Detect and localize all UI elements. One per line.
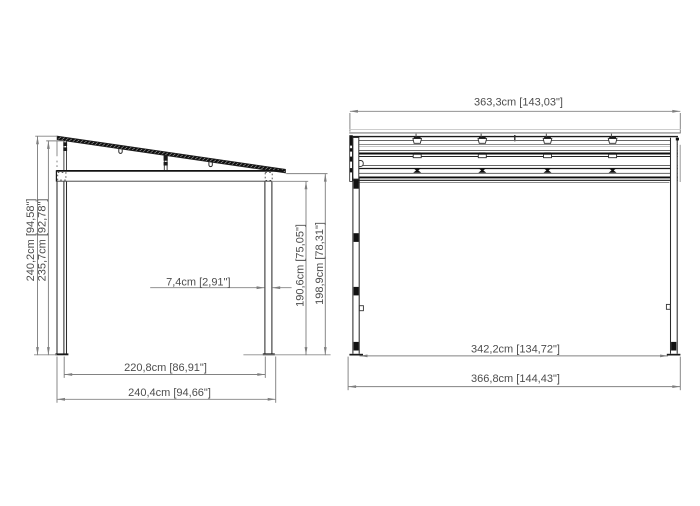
svg-text:240,4cm [94,66"]: 240,4cm [94,66"] <box>128 387 211 399</box>
svg-text:220,8cm [86,91"]: 220,8cm [86,91"] <box>124 362 207 374</box>
svg-text:366,8cm [144,43"]: 366,8cm [144,43"] <box>471 373 560 385</box>
svg-text:235,7cm [92,78"]: 235,7cm [92,78"] <box>36 199 48 282</box>
svg-text:7,4cm [2,91"]: 7,4cm [2,91"] <box>166 276 230 288</box>
svg-text:342,2cm [134,72"]: 342,2cm [134,72"] <box>471 343 560 355</box>
svg-text:363,3cm [143,03"]: 363,3cm [143,03"] <box>474 96 563 108</box>
svg-text:190,6cm [75,05"]: 190,6cm [75,05"] <box>295 224 307 307</box>
svg-text:198,9cm [78,31"]: 198,9cm [78,31"] <box>314 222 326 305</box>
